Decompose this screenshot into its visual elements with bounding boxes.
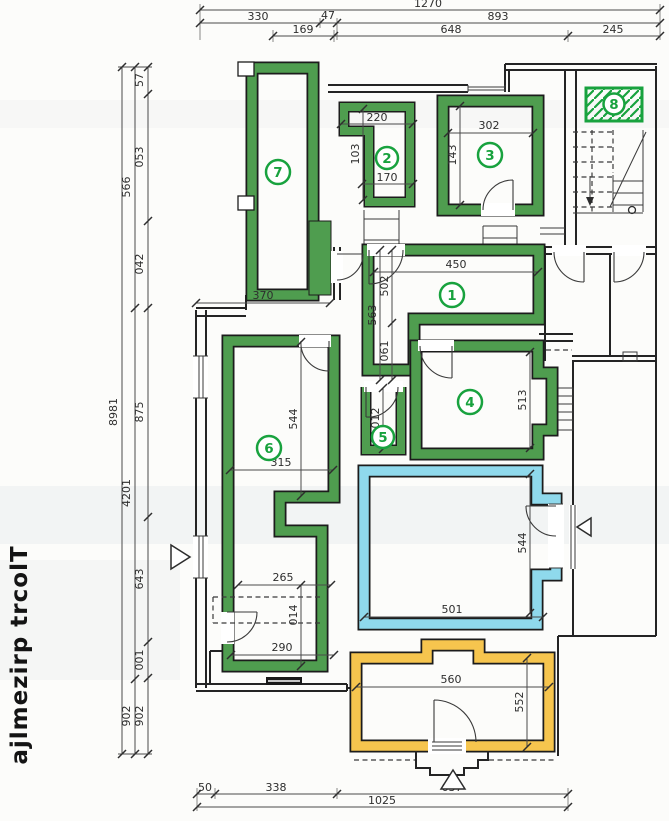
room-7-number: 7 [273, 165, 282, 181]
dim-left-346: 643 [133, 569, 146, 590]
dim-room1-160: 061 [378, 341, 391, 362]
room-2-number: 2 [382, 151, 391, 167]
dim-yellow-560: 560 [441, 673, 462, 686]
room-8-number: 8 [609, 97, 618, 113]
section-marker-bottom [441, 770, 465, 789]
dim-room4-315: 513 [516, 390, 529, 411]
dim-left-665: 566 [120, 177, 133, 198]
dim-room3-302: 302 [479, 119, 500, 132]
dim-room6-410: 014 [287, 605, 300, 626]
dim-room2-301: 103 [349, 144, 362, 165]
dim-left-578: 875 [133, 402, 146, 423]
dim-room6-290: 290 [272, 641, 293, 654]
dim-top-893: 893 [488, 10, 509, 23]
room-4-number: 4 [465, 395, 474, 411]
dim-left-209a: 902 [120, 706, 133, 727]
page-title: ajlmezirp trcolT [7, 545, 33, 764]
dim-top-330: 330 [248, 10, 269, 23]
dim-left-1024: 4201 [120, 479, 133, 507]
dim-left-75: 57 [133, 73, 146, 87]
room-4-walls-outline [416, 346, 552, 454]
room-7-pilaster [309, 221, 331, 295]
dim-top-169: 169 [293, 23, 314, 36]
dim-room3-341: 143 [446, 145, 459, 166]
stair-direction-arrow [586, 197, 594, 206]
section-marker-right [577, 518, 591, 536]
dim-bottom-1025: 1025 [368, 794, 396, 807]
dim-top-648: 648 [441, 23, 462, 36]
dim-room1-365: 563 [366, 305, 379, 326]
dim-room1-450: 450 [446, 258, 467, 271]
dim-left-209b: 902 [133, 706, 146, 727]
dim-room1-205: 502 [378, 276, 391, 297]
room-1-number: 1 [447, 288, 456, 304]
stair-start-marker [629, 207, 636, 214]
scan-artifact-band [0, 100, 669, 128]
dim-room2-220: 220 [367, 111, 388, 124]
dim-room6-445: 544 [287, 409, 300, 430]
dim-bottom-50: 50 [198, 781, 212, 794]
dim-left-100: 001 [133, 650, 146, 671]
window-room7-upper [238, 62, 254, 76]
floor-plan-drawing: 1270 330 47 893 169 648 245 8981 566 420… [0, 0, 669, 821]
dim-left-240: 042 [133, 254, 146, 275]
window-left-upper [193, 356, 208, 398]
dim-top-245: 245 [603, 23, 624, 36]
staircase [573, 130, 646, 214]
room-3-number: 3 [485, 148, 494, 164]
dim-yellow-255: 552 [513, 692, 526, 713]
dim-left-350: 053 [133, 147, 146, 168]
room-6-number: 6 [264, 441, 273, 457]
dim-bottom-338: 338 [266, 781, 287, 794]
dimension-lines [118, 4, 664, 811]
dim-blue-501: 501 [442, 603, 463, 616]
dim-top-47: 47 [321, 9, 335, 22]
dim-room7-370: 370 [253, 289, 274, 302]
room-5-number: 5 [378, 430, 387, 446]
dim-top-total: 1270 [414, 0, 442, 10]
dim-room6-265: 265 [273, 571, 294, 584]
window-room7-lower [238, 196, 254, 210]
window-left-lower [193, 536, 208, 578]
dim-room2-170: 170 [377, 171, 398, 184]
scanned-floor-plan-page: 1270 330 47 893 169 648 245 8981 566 420… [0, 0, 669, 821]
section-marker-left [171, 545, 190, 569]
dim-blue-445: 544 [516, 533, 529, 554]
dim-left-1898: 8981 [107, 398, 120, 426]
